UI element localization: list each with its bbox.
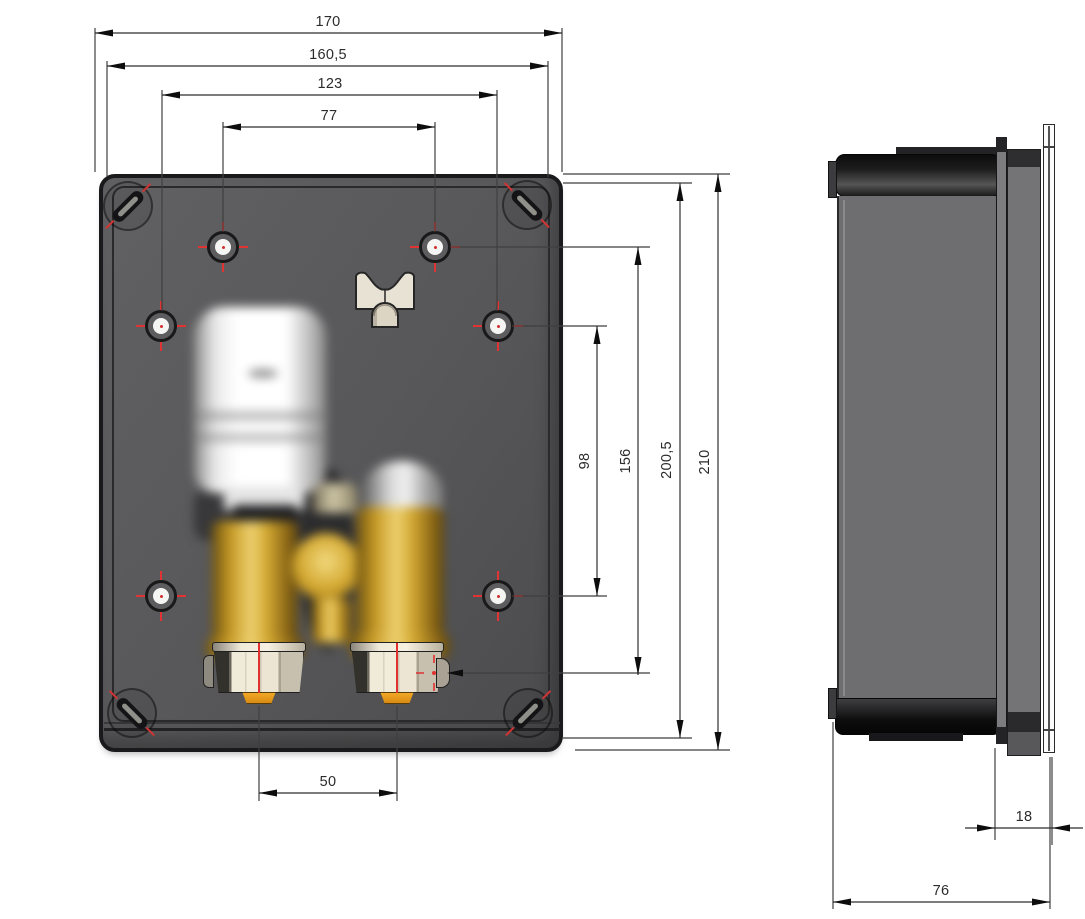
nut-side-port [203,655,214,688]
thermostatic-head [194,307,326,493]
side-wall-bottom-band [1008,712,1040,732]
head-notch [248,369,278,378]
side-mounting-rail [996,137,1007,744]
dim-label-total-depth: 76 [933,883,950,899]
drain-stem [312,599,352,643]
mounting-hole [207,231,239,263]
nut-centerline [396,643,398,693]
dim-label-hole-span-v-inner: 98 [577,453,593,470]
side-rail-top-cap [996,137,1007,152]
side-wall-top-cap [1008,150,1040,167]
dim-label-hole-span-v-outer: 156 [618,448,634,473]
dim-label-pipe-spacing: 50 [320,774,337,790]
union-nut-right [350,642,444,706]
mounting-hole [145,310,177,342]
mounting-hole [145,580,177,612]
technical-drawing-canvas: 170 160,5 123 77 98 156 200,5 210 50 18 … [0,0,1085,919]
union-nut-left [212,642,306,706]
side-bottom-bar [835,698,1001,735]
nut-centerline [258,643,260,693]
dim-label-front-depth: 18 [1016,809,1033,825]
side-bottom-lip [869,733,963,741]
head-band [192,411,328,421]
corner-screw-slot-top-right [497,175,557,235]
side-left-tab-bottom [828,688,837,719]
dim-label-outer-height: 210 [697,449,713,474]
side-rail-bottom-cap [996,727,1007,744]
flange-center-line [1048,126,1050,751]
nut-orange-insert [378,692,416,704]
side-body [837,196,997,700]
corner-screw-slot-bottom-left [102,683,162,743]
dim-label-inner-height: 200,5 [659,441,675,479]
side-body-seam [843,200,845,696]
drain-cap [313,483,357,513]
box-bottom-groove-line [104,728,560,731]
box-bottom-groove-line [104,722,560,724]
head-band [192,433,328,442]
dim-label-inner-width: 160,5 [309,47,347,63]
side-left-tab-top [828,161,837,198]
mounting-hole [482,580,514,612]
dim-label-hole-span-wide: 123 [317,76,342,92]
nut-orange-insert [240,692,278,704]
dim-label-outer-width: 170 [315,14,340,30]
side-wall-section [1007,149,1041,756]
mounting-hole [482,310,514,342]
dim-label-hole-span-narrow: 77 [321,108,338,124]
flange-joint-line [1044,146,1054,148]
corner-screw-slot-top-left [98,176,158,236]
valve-assembly-blurred [180,293,470,659]
mounting-hole [419,231,451,263]
nut-side-port [436,658,450,688]
corner-screw-slot-bottom-right [498,683,558,743]
side-wall-foot [1008,732,1040,755]
drain-valve [292,533,360,601]
side-top-bar [835,154,1001,197]
flange-joint-line [1044,729,1054,731]
